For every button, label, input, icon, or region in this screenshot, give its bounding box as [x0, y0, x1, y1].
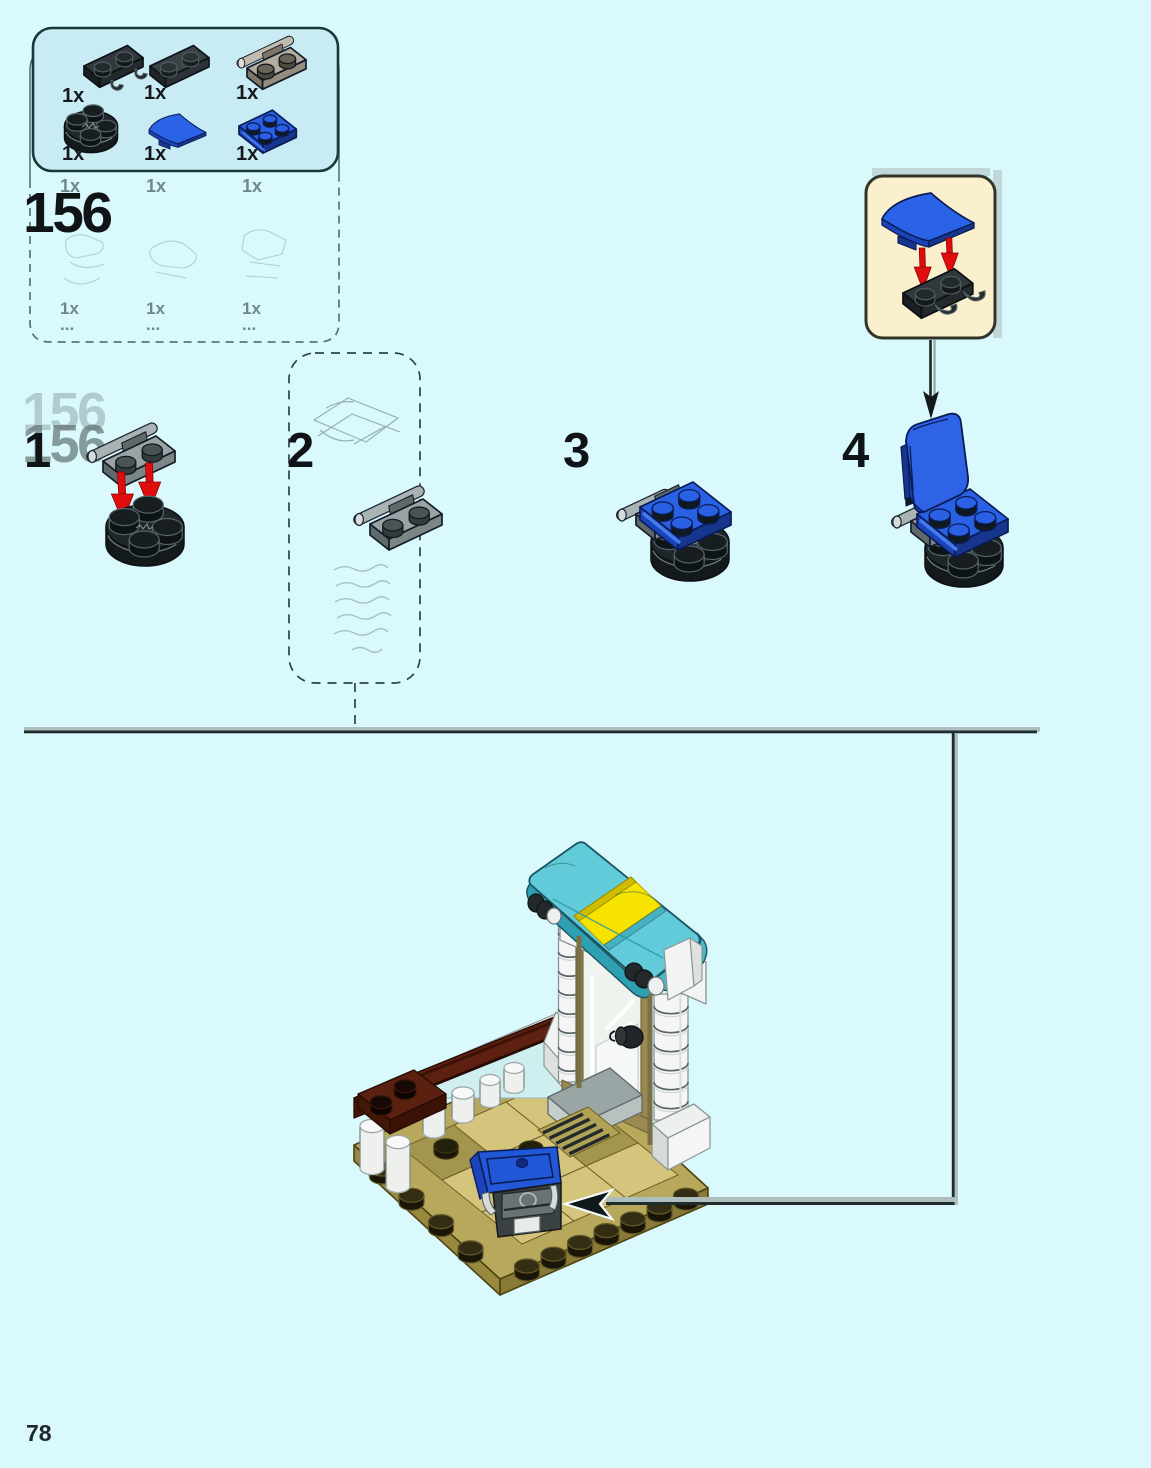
svg-text:156: 156	[23, 181, 111, 245]
svg-text:1x: 1x	[146, 176, 166, 196]
svg-text:...: ...	[242, 315, 256, 334]
svg-text:1: 1	[24, 424, 51, 478]
svg-text:1x: 1x	[236, 82, 258, 104]
svg-text:2: 2	[287, 424, 314, 478]
svg-text:3: 3	[563, 424, 590, 478]
svg-text:1x: 1x	[236, 143, 258, 165]
svg-text:...: ...	[60, 315, 74, 334]
svg-text:4: 4	[842, 424, 869, 478]
svg-text:1x: 1x	[144, 82, 166, 104]
svg-text:1x: 1x	[62, 143, 84, 165]
svg-text:1x: 1x	[242, 176, 262, 196]
svg-text:1x: 1x	[144, 143, 166, 165]
svg-text:78: 78	[26, 1420, 52, 1446]
svg-text:...: ...	[146, 315, 160, 334]
svg-text:1x: 1x	[62, 85, 84, 107]
